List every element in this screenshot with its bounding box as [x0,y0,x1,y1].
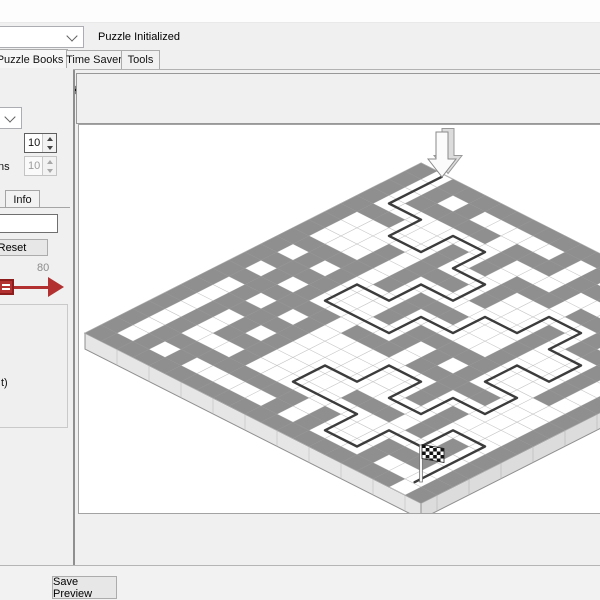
left-control-panel: 10 ns 10 Info Reset 80 t) [0,68,73,565]
up-arrow-icon [47,160,53,164]
maze-preview-canvas[interactable] [78,124,600,514]
chevron-down-icon [4,111,15,122]
spin-up [43,157,56,166]
button-label: Save Preview [53,576,116,600]
down-arrow-icon [47,169,53,173]
save-preview-button[interactable]: Save Preview [52,576,117,599]
rows-stepper[interactable]: 10 [24,133,57,153]
tab-time-saver[interactable]: Time Saver [66,50,122,69]
tab-label: Info [13,194,31,206]
spinner[interactable] [42,134,56,152]
top-strip [0,0,600,23]
complexity-slider-handle[interactable] [0,279,14,295]
options-groupbox [0,304,68,428]
up-arrow-icon [47,137,53,141]
panel-splitter[interactable] [73,70,75,565]
spin-down [43,166,56,175]
chevron-down-icon [66,30,77,41]
spin-up[interactable] [43,134,56,143]
puzzle-type-combobox[interactable] [0,26,84,48]
tab-label: t Puzzle Books [0,54,63,66]
tab-info[interactable]: Info [5,190,40,208]
columns-stepper: 10 [24,156,57,176]
tab-strip: t Puzzle Books Time Saver Tools [0,50,600,69]
status-label: Puzzle Initialized [98,31,180,43]
maze-svg [79,125,600,513]
name-textbox[interactable] [0,214,58,233]
spinner [42,157,56,175]
slider-arrow-icon [48,277,64,297]
info-tab-border [0,207,70,208]
complexity-slider-track[interactable] [14,286,50,289]
reset-button[interactable]: Reset [0,239,48,256]
columns-value: 10 [25,157,42,175]
preview-options-panel [76,73,600,124]
tab-tools[interactable]: Tools [121,50,160,69]
tab-label: Tools [128,54,154,66]
columns-label: ns [0,161,10,173]
rows-value: 10 [25,134,42,152]
down-arrow-icon [47,146,53,150]
tab-label: Time Saver [66,54,122,66]
button-label: Reset [0,242,26,254]
slider-value-label: 80 [37,262,49,274]
tab-puzzle-books[interactable]: t Puzzle Books [0,49,68,69]
groupbox-text: t) [1,377,8,389]
tabpage-border [0,69,600,70]
maze-style-combobox[interactable] [0,107,22,129]
spin-down[interactable] [43,143,56,152]
